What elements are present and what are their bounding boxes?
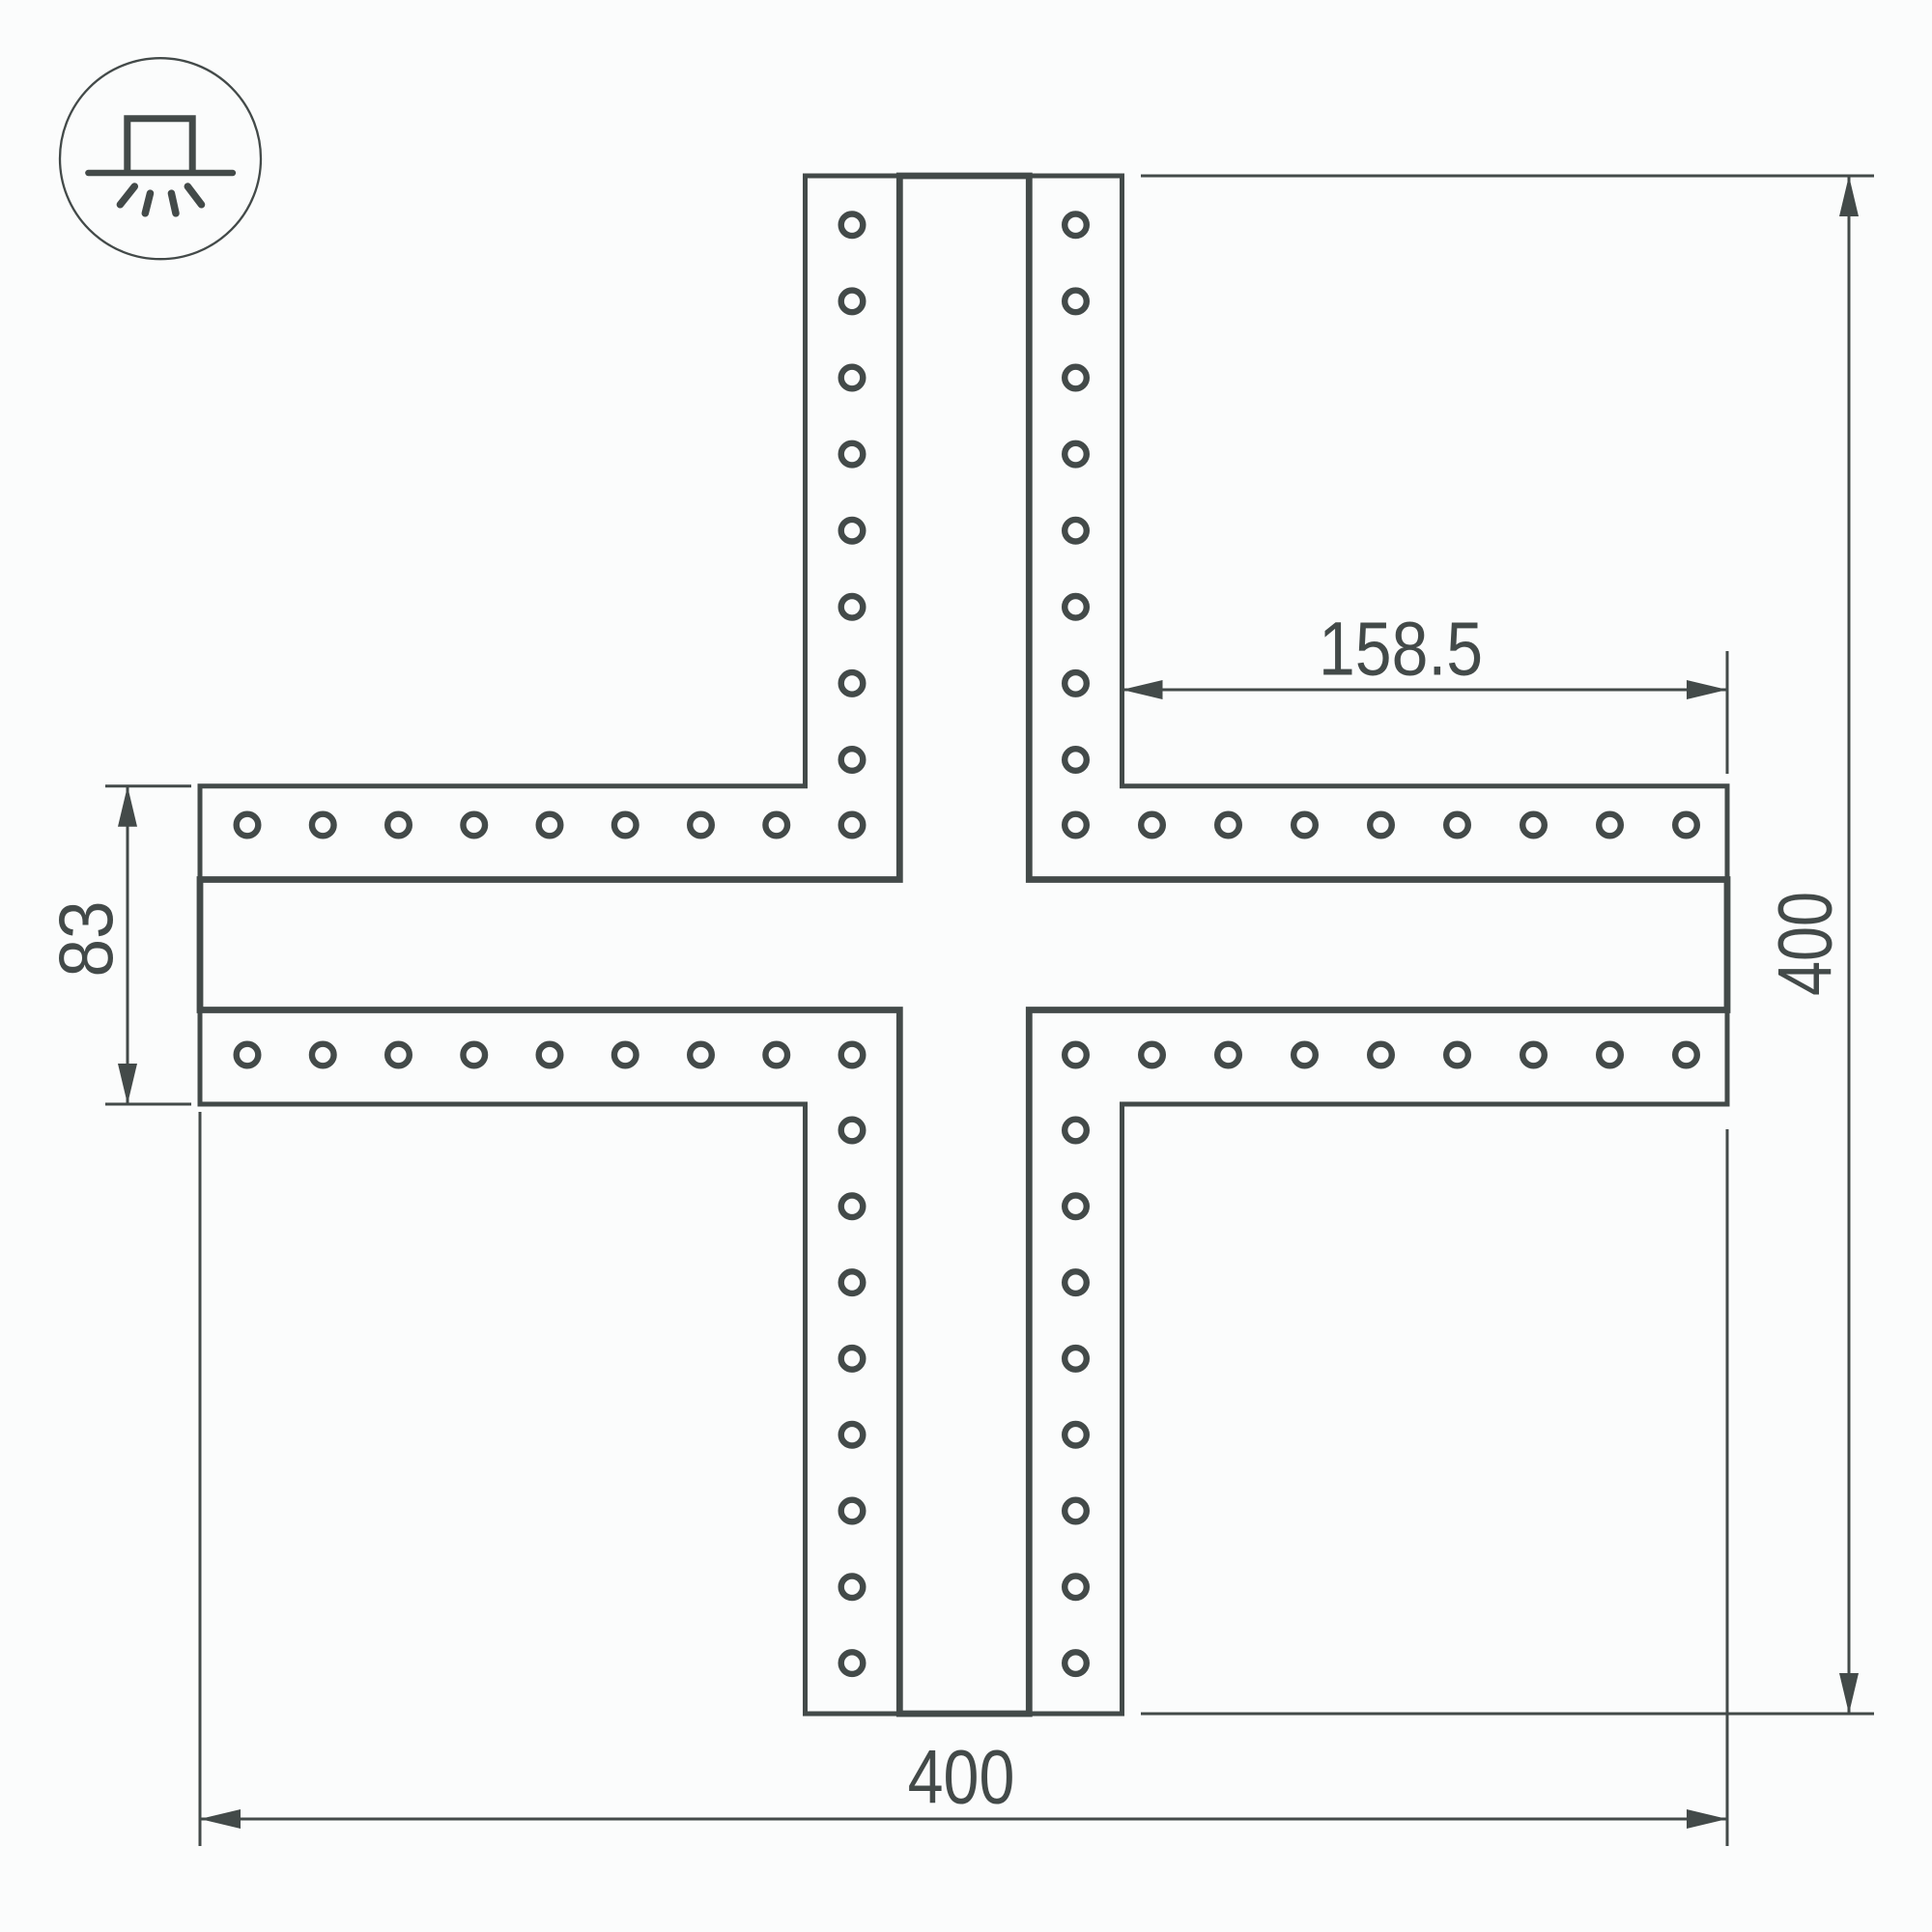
svg-text:400: 400 bbox=[1763, 892, 1847, 996]
svg-text:158.5: 158.5 bbox=[1319, 605, 1483, 691]
svg-text:400: 400 bbox=[908, 1735, 1015, 1820]
svg-text:83: 83 bbox=[43, 900, 128, 977]
